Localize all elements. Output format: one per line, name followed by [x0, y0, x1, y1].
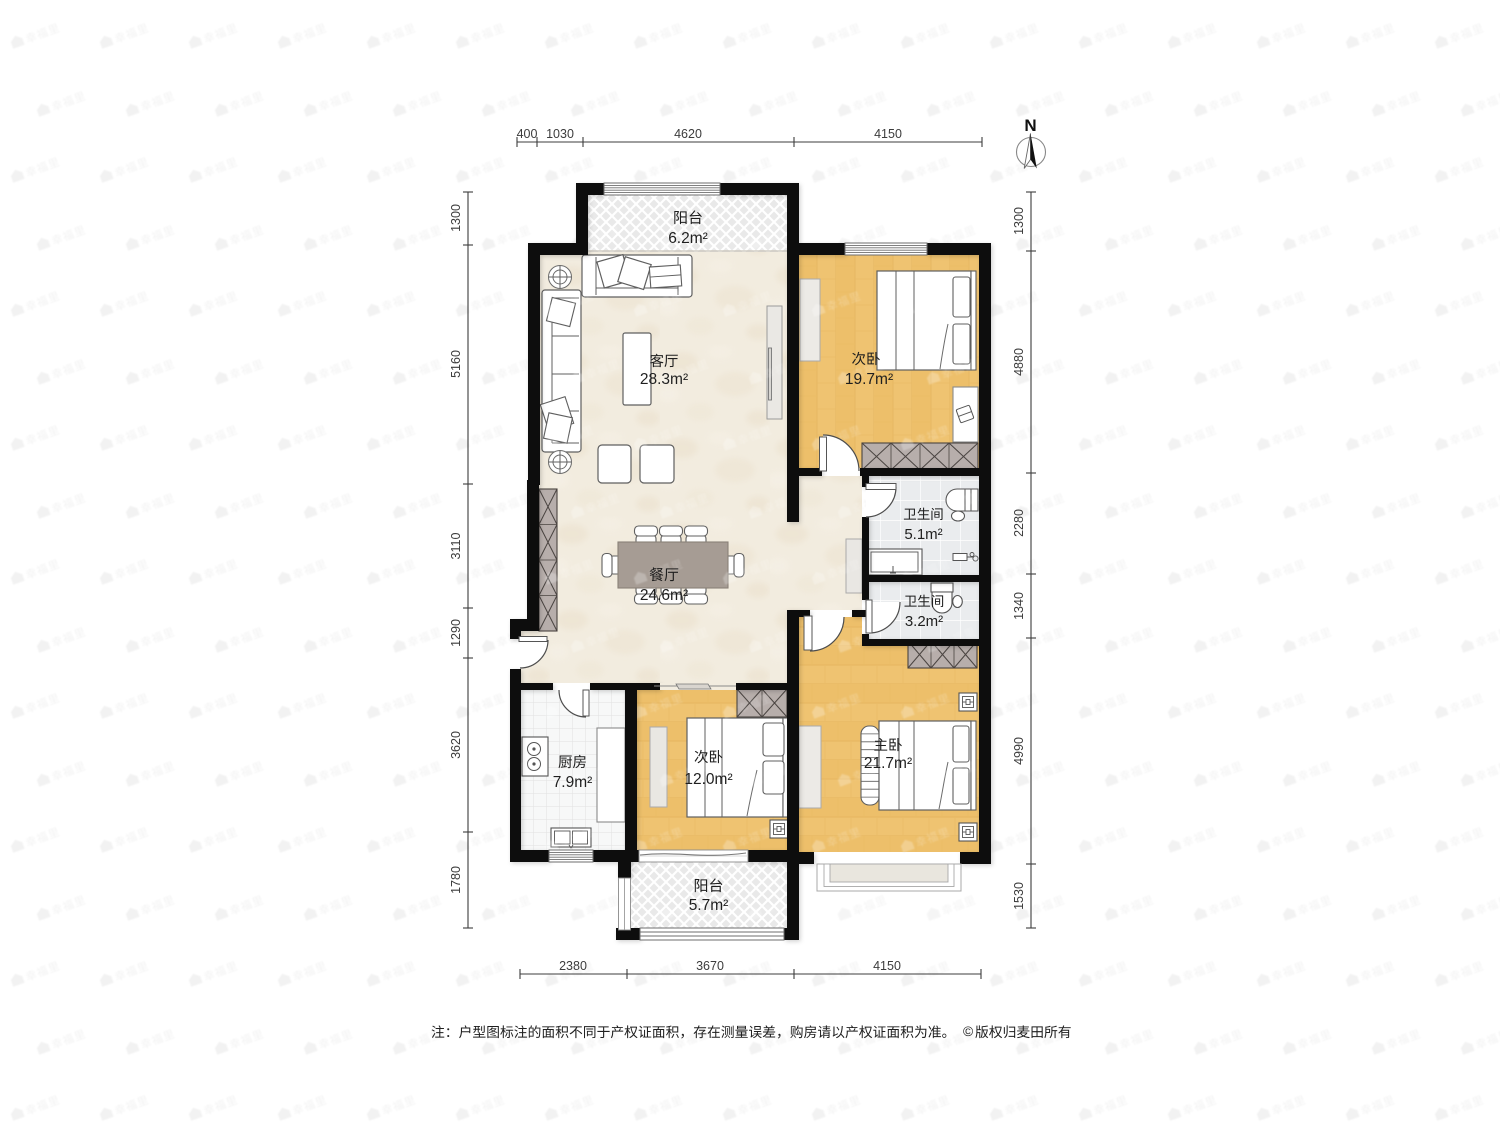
svg-text:1300: 1300 [1012, 207, 1026, 235]
svg-text:2380: 2380 [559, 959, 587, 973]
svg-text:5160: 5160 [449, 350, 463, 378]
svg-text:3110: 3110 [449, 533, 463, 560]
svg-text:4150: 4150 [874, 127, 902, 141]
svg-text:1340: 1340 [1012, 592, 1026, 620]
svg-text:2280: 2280 [1012, 509, 1026, 537]
svg-text:4150: 4150 [873, 959, 901, 973]
svg-text:1530: 1530 [1012, 882, 1026, 910]
svg-text:5.7m²: 5.7m² [689, 897, 729, 914]
svg-text:3670: 3670 [696, 959, 724, 973]
svg-text:3620: 3620 [449, 731, 463, 759]
svg-text:21.7m²: 21.7m² [864, 755, 912, 772]
svg-text:1780: 1780 [449, 866, 463, 894]
svg-text:19.7m²: 19.7m² [845, 371, 893, 388]
svg-text:28.3m²: 28.3m² [640, 371, 688, 388]
svg-text:6.2m²: 6.2m² [668, 230, 708, 247]
svg-text:7.9m²: 7.9m² [553, 774, 593, 791]
svg-text:©: © [963, 1024, 973, 1039]
svg-text:3.2m²: 3.2m² [905, 613, 943, 630]
svg-text:N: N [1024, 116, 1036, 135]
svg-text:5.1m²: 5.1m² [904, 526, 942, 543]
svg-text:1030: 1030 [546, 127, 574, 141]
svg-text:400: 400 [517, 127, 538, 141]
svg-text:1300: 1300 [449, 204, 463, 232]
svg-text:4990: 4990 [1012, 737, 1026, 765]
svg-text:4620: 4620 [674, 127, 702, 141]
svg-text:1290: 1290 [449, 619, 463, 647]
svg-text:24.6m²: 24.6m² [640, 587, 688, 604]
svg-text:4880: 4880 [1012, 348, 1026, 376]
svg-text:12.0m²: 12.0m² [684, 771, 732, 788]
